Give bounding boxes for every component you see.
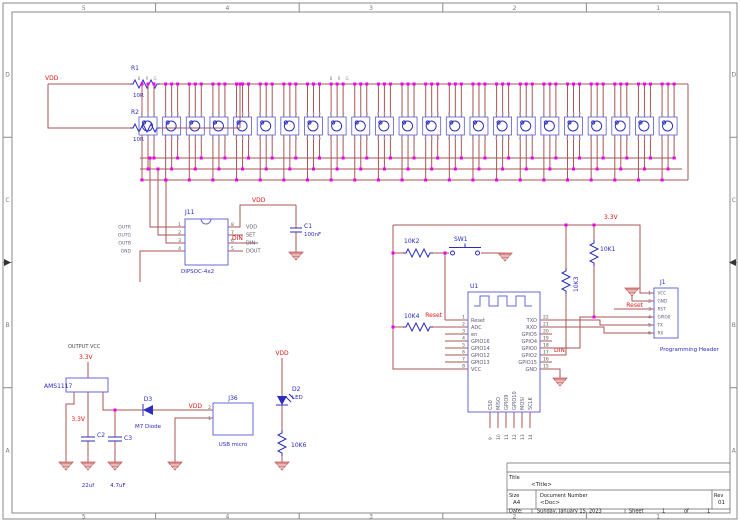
junction-dot — [141, 83, 144, 86]
j1-ref[interactable]: J1 — [659, 279, 666, 286]
regulator-label[interactable]: AMS1117 — [44, 383, 73, 390]
usb-value[interactable]: USB micro — [219, 442, 248, 448]
frame-column-label: 2 — [513, 5, 517, 12]
u1-pin-number: 9 — [488, 437, 494, 440]
junction-dot — [389, 157, 392, 160]
junction-dot — [436, 157, 439, 160]
resistor-10k6[interactable] — [278, 430, 286, 456]
led-unit[interactable] — [588, 84, 606, 180]
u1-pin-number: 3 — [462, 329, 465, 335]
r10k2-label[interactable]: 10K2 — [404, 238, 420, 245]
junction-dot — [407, 168, 410, 171]
dip-socket-j11[interactable]: J11 DIPSOC-4x2 DIN VDD 18VDDOUTR27SETOUT… — [118, 197, 296, 282]
junction-dot — [188, 179, 191, 182]
led-unit[interactable] — [494, 84, 512, 180]
j1-pin-label: RST — [658, 307, 667, 312]
frame-row-label: B — [732, 322, 736, 329]
led-unit[interactable] — [565, 84, 583, 180]
junction-dot — [436, 83, 439, 86]
junction-dot — [211, 179, 214, 182]
junction-dot — [572, 83, 575, 86]
junction-dot — [377, 83, 380, 86]
junction-dot — [217, 168, 220, 171]
frame-inner-border — [12, 12, 730, 513]
junction-dot — [625, 157, 628, 160]
resistor-10k2[interactable] — [403, 249, 433, 257]
junction-dot — [424, 83, 427, 86]
junction-dot — [392, 252, 395, 255]
u1-pin-number: 18 — [543, 343, 549, 349]
d3-value[interactable]: M7 Diode — [135, 424, 162, 430]
j11-pin-label: SET — [246, 233, 256, 239]
u1-pin-number: 20 — [543, 329, 549, 335]
junction-dot — [649, 157, 652, 160]
j1-pin-label: VCC — [658, 291, 667, 296]
junction-dot — [407, 83, 410, 86]
sheet-of-label: of — [684, 509, 689, 515]
c3-plates[interactable] — [108, 437, 122, 441]
junction-dot — [223, 83, 226, 86]
junction-dot — [673, 83, 676, 86]
u1-pin-label: CS0 — [488, 400, 494, 410]
bus-letter-label: G — [345, 76, 348, 81]
junction-dot — [602, 83, 605, 86]
frame-outer-border — [3, 3, 737, 519]
j11-pin-label: DIN — [246, 241, 255, 247]
junction-dot — [217, 83, 220, 86]
net-label-vdd-j11[interactable]: VDD — [252, 197, 266, 204]
doc-value[interactable]: <Doc> — [540, 500, 560, 506]
led-unit[interactable] — [541, 84, 559, 180]
junction-dot — [430, 83, 433, 86]
net-label-33v[interactable]: 3.3V — [604, 214, 619, 221]
frame-row-label: D — [731, 72, 736, 79]
junction-dot — [165, 179, 168, 182]
led-unit[interactable] — [328, 84, 346, 180]
j11-pin-number: 6 — [231, 238, 234, 244]
ground-icon — [275, 462, 289, 470]
junction-dot — [235, 83, 238, 86]
j11-pin-number: 5 — [231, 246, 234, 252]
junction-dot — [271, 157, 274, 160]
j1-pin-label: GND — [658, 299, 668, 304]
j11-value[interactable]: DIPSOC-4x2 — [181, 269, 214, 275]
j11-net-label[interactable]: OUTB — [118, 241, 131, 247]
date-value[interactable]: Sunday, January 15, 2023 — [537, 509, 602, 515]
frame-column-label: 5 — [82, 5, 86, 12]
led-unit[interactable] — [257, 84, 275, 180]
u1-pin-label: SCLK — [528, 397, 534, 410]
u1-pin-number: 5 — [462, 343, 465, 349]
frame-ticks — [3, 3, 737, 519]
junction-dot — [312, 83, 315, 86]
led-unit[interactable] — [399, 84, 417, 180]
frame-column-label: 5 — [82, 514, 86, 521]
junction-dot — [507, 83, 510, 86]
c1-plates[interactable] — [290, 228, 302, 232]
net-label-reset-j1[interactable]: Reset — [626, 302, 643, 309]
wire-j11-pins[interactable] — [140, 205, 296, 282]
net-label-vdd-led[interactable]: VDD — [275, 350, 289, 357]
junction-dot — [365, 157, 368, 160]
u1-body[interactable] — [468, 292, 540, 412]
junction-dot — [673, 157, 676, 160]
junction-dot — [542, 83, 545, 86]
junction-dot — [590, 179, 593, 182]
j11-net-label[interactable]: OUTR — [118, 225, 131, 231]
rev-value[interactable]: 01 — [718, 500, 725, 506]
wire-led-busses[interactable] — [140, 158, 688, 243]
u1-pin-number: 19 — [543, 336, 549, 342]
junction-dot — [602, 157, 605, 160]
d3-diode-icon[interactable] — [143, 405, 153, 415]
rev-label: Rev — [714, 493, 723, 499]
u1-antenna-icon — [474, 296, 532, 306]
sheet-total[interactable]: 1 — [707, 509, 710, 515]
u1-pin-label: MISO — [496, 397, 502, 410]
junction-dot — [401, 179, 404, 182]
ground-icon — [59, 462, 73, 470]
r10k6-label[interactable]: 10K6 — [291, 442, 307, 449]
led-array[interactable] — [139, 84, 677, 180]
junction-dot — [566, 179, 569, 182]
junction-dot — [336, 168, 339, 171]
u1-pin-label: GPIO5 — [522, 332, 537, 338]
sheet-number[interactable]: 1 — [662, 509, 665, 515]
junction-dot — [318, 83, 321, 86]
junction-dot — [353, 83, 356, 86]
sw1-contact-right — [476, 251, 480, 255]
junction-dot — [667, 168, 670, 171]
bus-letter-label: R — [338, 76, 341, 81]
junction-dot — [223, 157, 226, 160]
u1-pin-label: ADC — [471, 325, 482, 331]
u1-pin-label: en — [471, 332, 477, 338]
bus-letter-label: B — [138, 76, 141, 81]
c1-ref[interactable]: C1 — [304, 223, 312, 230]
frame-row-label: A — [732, 447, 737, 454]
junction-dot — [471, 179, 474, 182]
junction-dot — [596, 168, 599, 171]
junction-dot — [259, 179, 262, 182]
c2-ref[interactable]: C2 — [97, 432, 105, 439]
junction-dot — [194, 168, 197, 171]
junction-dot — [483, 83, 486, 86]
junction-dot — [460, 83, 463, 86]
junction-dot — [448, 179, 451, 182]
junction-dot — [619, 168, 622, 171]
junction-dot — [401, 83, 404, 86]
junction-dot — [164, 83, 167, 86]
junction-dot — [565, 224, 568, 227]
frame-row-label: A — [5, 447, 10, 454]
usb-pin2-number: 2 — [208, 405, 211, 411]
c1-value[interactable]: 100nF — [304, 232, 321, 238]
u1-ref[interactable]: U1 — [470, 283, 478, 290]
led-unit[interactable] — [659, 84, 677, 180]
u1-pin-number: 1 — [462, 315, 465, 321]
junction-dot — [613, 83, 616, 86]
u1-pin-number: 13 — [520, 434, 526, 440]
frame-row-label: B — [5, 322, 9, 329]
junction-dot — [667, 83, 670, 86]
junction-dot — [448, 83, 451, 86]
junction-dot — [170, 168, 173, 171]
d3-ref[interactable]: D3 — [144, 396, 153, 403]
led-unit[interactable] — [635, 84, 653, 180]
junction-dot — [259, 83, 262, 86]
junction-dot — [306, 83, 309, 86]
junction-dot — [525, 83, 528, 86]
d2-value[interactable]: LED — [292, 395, 303, 401]
c3-value[interactable]: 4.7uF — [110, 483, 125, 489]
frame-row-label: C — [5, 197, 9, 204]
ground-icon — [168, 462, 182, 470]
capacitor-c1[interactable]: C1 100nF — [290, 205, 321, 252]
u1-pin-label: GPIO2 — [522, 353, 537, 359]
j11-pin-label: DOUT — [246, 249, 261, 255]
u1-pin-label: GPIO0 — [522, 346, 537, 352]
junction-dot — [241, 168, 244, 171]
junction-dot — [288, 83, 291, 86]
resistor-10k4[interactable] — [403, 323, 433, 331]
junction-dot — [519, 83, 522, 86]
wire-vdd-feed[interactable] — [48, 84, 688, 180]
u1-pin-label: MOSI — [520, 397, 526, 410]
frame-column-label: 4 — [225, 5, 229, 12]
j11-net-label[interactable]: GND — [121, 249, 132, 255]
usb-ref[interactable]: J36 — [227, 395, 238, 402]
u1-pin-label: GPIO15 — [518, 360, 537, 366]
c2-plates[interactable] — [81, 437, 95, 441]
j11-pin-number: 4 — [178, 246, 181, 252]
led-unit[interactable] — [517, 84, 535, 180]
led-unit[interactable] — [423, 84, 441, 180]
r10k1-label[interactable]: 10K1 — [600, 246, 616, 253]
j11-pin-number: 3 — [178, 238, 181, 244]
junction-dot — [239, 83, 242, 86]
junction-dot — [330, 179, 333, 182]
junction-dot — [383, 83, 386, 86]
u1-pin-label: GPIO9 — [504, 395, 510, 410]
u1-pin-number: 12 — [512, 434, 518, 440]
u1-pin-number: 11 — [504, 434, 510, 440]
u1-pin-number: 6 — [462, 350, 465, 356]
junction-dot — [306, 179, 309, 182]
u1-pin-label: GPIO4 — [522, 339, 537, 345]
led-unit[interactable] — [612, 84, 630, 180]
junction-dot — [548, 83, 551, 86]
junction-dot — [194, 83, 197, 86]
junction-dot — [477, 83, 480, 86]
junction-dot — [613, 179, 616, 182]
u1-pin-label: Reset — [471, 318, 485, 324]
j1-caption[interactable]: Programming Header — [660, 347, 720, 353]
junction-dot — [501, 83, 504, 86]
bus-letter-label: R — [146, 76, 149, 81]
j1-pin-number: 6 — [648, 331, 651, 337]
j1-pin-number: 5 — [648, 323, 651, 329]
mcu-module-u1[interactable]: U1 1Reset2ADC3en4GPIO165GPIO146GPIO127GP… — [445, 283, 654, 440]
junction-dot — [318, 157, 321, 160]
led-unit[interactable] — [210, 84, 228, 180]
junction-dot — [265, 168, 268, 171]
junction-dot — [495, 83, 498, 86]
junction-dot — [525, 168, 528, 171]
junction-dot — [235, 179, 238, 182]
junction-dot — [147, 168, 150, 171]
junction-dot — [271, 83, 274, 86]
u1-pin-label: VCC — [471, 367, 482, 373]
title-label: Title — [508, 475, 520, 481]
junction-dot — [424, 179, 427, 182]
c3-ref[interactable]: C3 — [124, 435, 132, 442]
u1-pin-label: GPIO12 — [471, 353, 490, 359]
u1-pin-number: 17 — [543, 350, 549, 356]
r2-ref[interactable]: R2 — [131, 109, 139, 116]
title-value[interactable]: <Title> — [531, 482, 552, 488]
junction-dot — [495, 179, 498, 182]
junction-dot — [483, 157, 486, 160]
junction-dot — [413, 83, 416, 86]
j11-notch — [201, 219, 211, 224]
led-unit[interactable] — [186, 84, 204, 180]
junction-dot — [619, 83, 622, 86]
led-unit[interactable] — [375, 84, 393, 180]
net-label-33v-top[interactable]: 3.3V — [79, 354, 94, 361]
date-label: Date: — [509, 509, 523, 515]
u1-pin-number: 21 — [543, 322, 549, 328]
junction-dot — [531, 83, 534, 86]
r10k3-label[interactable]: 10K3 — [573, 276, 580, 292]
junction-dot — [342, 157, 345, 160]
net-label-33v-out[interactable]: 3.3V — [71, 416, 86, 423]
junction-dot — [141, 179, 144, 182]
junction-dot — [294, 83, 297, 86]
d2-ref[interactable]: D2 — [292, 386, 301, 393]
ground-icon — [108, 462, 122, 470]
j11-net-label[interactable]: OUTG — [118, 233, 132, 239]
junction-dot — [247, 157, 250, 160]
size-value[interactable]: A4 — [513, 500, 521, 506]
j11-body[interactable] — [185, 219, 228, 265]
led-unit[interactable] — [470, 84, 488, 180]
junction-dot — [359, 168, 362, 171]
junction-dot — [247, 83, 250, 86]
schematic-canvas[interactable]: 5544332211DDCCBBAA VDD R1 10R R2 10R BRG… — [0, 0, 740, 523]
doc-label: Document Number — [540, 493, 589, 499]
junction-dot — [147, 83, 150, 86]
junction-dot — [200, 157, 203, 160]
u1-pin-number: 4 — [462, 336, 465, 342]
r1-ref[interactable]: R1 — [131, 65, 139, 72]
u1-pin-number: 8 — [462, 364, 465, 370]
u1-pin-label: TXD — [526, 318, 537, 324]
junction-dot — [661, 83, 664, 86]
ground-icon — [625, 288, 639, 296]
j1-pin-label: GPIO0 — [658, 315, 671, 320]
frame-column-label: 2 — [513, 514, 517, 521]
frame-column-label: 1 — [656, 514, 660, 521]
frame-column-label: 3 — [369, 514, 373, 521]
junction-dot — [542, 179, 545, 182]
size-label: Size — [509, 493, 519, 499]
sw1-actuator[interactable] — [449, 244, 481, 248]
u1-pin-label: GND — [526, 367, 538, 373]
j1-pin-number: 2 — [648, 299, 651, 305]
u1-pin-number: 7 — [462, 357, 465, 363]
junction-dot — [211, 83, 214, 86]
junction-dot — [507, 157, 510, 160]
net-label-reset-u1[interactable]: Reset — [425, 312, 442, 319]
led-unit[interactable] — [139, 84, 157, 180]
wire-power[interactable] — [66, 358, 282, 462]
junction-dot — [413, 157, 416, 160]
led-unit[interactable] — [446, 84, 464, 180]
d2-led-icon[interactable] — [277, 396, 287, 405]
led-unit[interactable] — [163, 84, 181, 180]
ground-icon — [81, 462, 95, 470]
sw1-ref[interactable]: SW1 — [454, 236, 468, 243]
junction-dot — [157, 168, 160, 171]
junction-dot — [342, 83, 345, 86]
junction-dot — [637, 83, 640, 86]
frame-column-label: 1 — [656, 5, 660, 12]
junction-dot — [336, 83, 339, 86]
junction-dot — [114, 409, 117, 412]
junction-dot — [444, 252, 447, 255]
junction-dot — [353, 179, 356, 182]
junction-dot — [554, 83, 557, 86]
junction-dot — [596, 83, 599, 86]
net-label-vdd-usb[interactable]: VDD — [189, 403, 203, 410]
resistor-10k1[interactable] — [590, 240, 598, 266]
junction-dot — [430, 168, 433, 171]
led-unit[interactable] — [304, 84, 322, 180]
junction-dot — [312, 168, 315, 171]
junction-dot — [471, 83, 474, 86]
j1-pin-label: TX — [657, 323, 664, 328]
resistor-10k3[interactable] — [562, 268, 570, 294]
junction-dot — [593, 316, 596, 319]
junction-dot — [625, 83, 628, 86]
usb-body[interactable] — [213, 403, 253, 435]
junction-dot — [593, 224, 596, 227]
j1-pin-number: 1 — [648, 291, 651, 297]
c2-value[interactable]: 22uf — [82, 483, 95, 489]
net-label-vdd[interactable]: VDD — [45, 75, 59, 82]
junction-dot — [288, 168, 291, 171]
r10k4-label[interactable]: 10K4 — [404, 313, 420, 320]
junction-dot — [554, 157, 557, 160]
usb-pin1-number: 1 — [208, 416, 211, 422]
junction-dot — [590, 83, 593, 86]
u1-pin-number: 2 — [462, 322, 465, 328]
junction-dot — [383, 168, 386, 171]
u1-pin-number: 22 — [543, 315, 549, 321]
led-unit[interactable] — [352, 84, 370, 180]
junction-dot — [649, 83, 652, 86]
junction-dot — [176, 83, 179, 86]
j11-ref[interactable]: J11 — [184, 209, 195, 216]
led-unit[interactable] — [234, 84, 252, 180]
u1-pin-number: 14 — [528, 434, 534, 440]
j1-pin-label: RX — [658, 331, 664, 336]
frame-column-label: 4 — [225, 514, 229, 521]
led-unit[interactable] — [281, 84, 299, 180]
junction-dot — [572, 168, 575, 171]
u1-pin-label: GPIO13 — [471, 360, 490, 366]
